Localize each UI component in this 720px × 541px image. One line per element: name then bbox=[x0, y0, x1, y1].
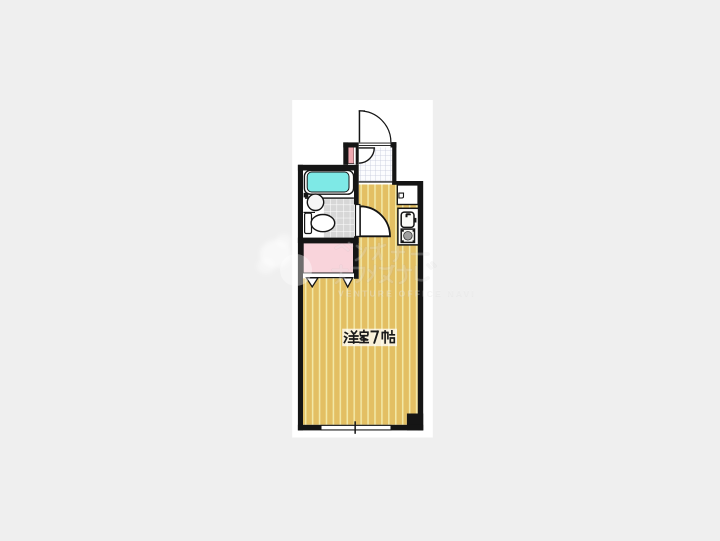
svg-text:VENTURE OFFICE NAVI: VENTURE OFFICE NAVI bbox=[338, 289, 476, 299]
